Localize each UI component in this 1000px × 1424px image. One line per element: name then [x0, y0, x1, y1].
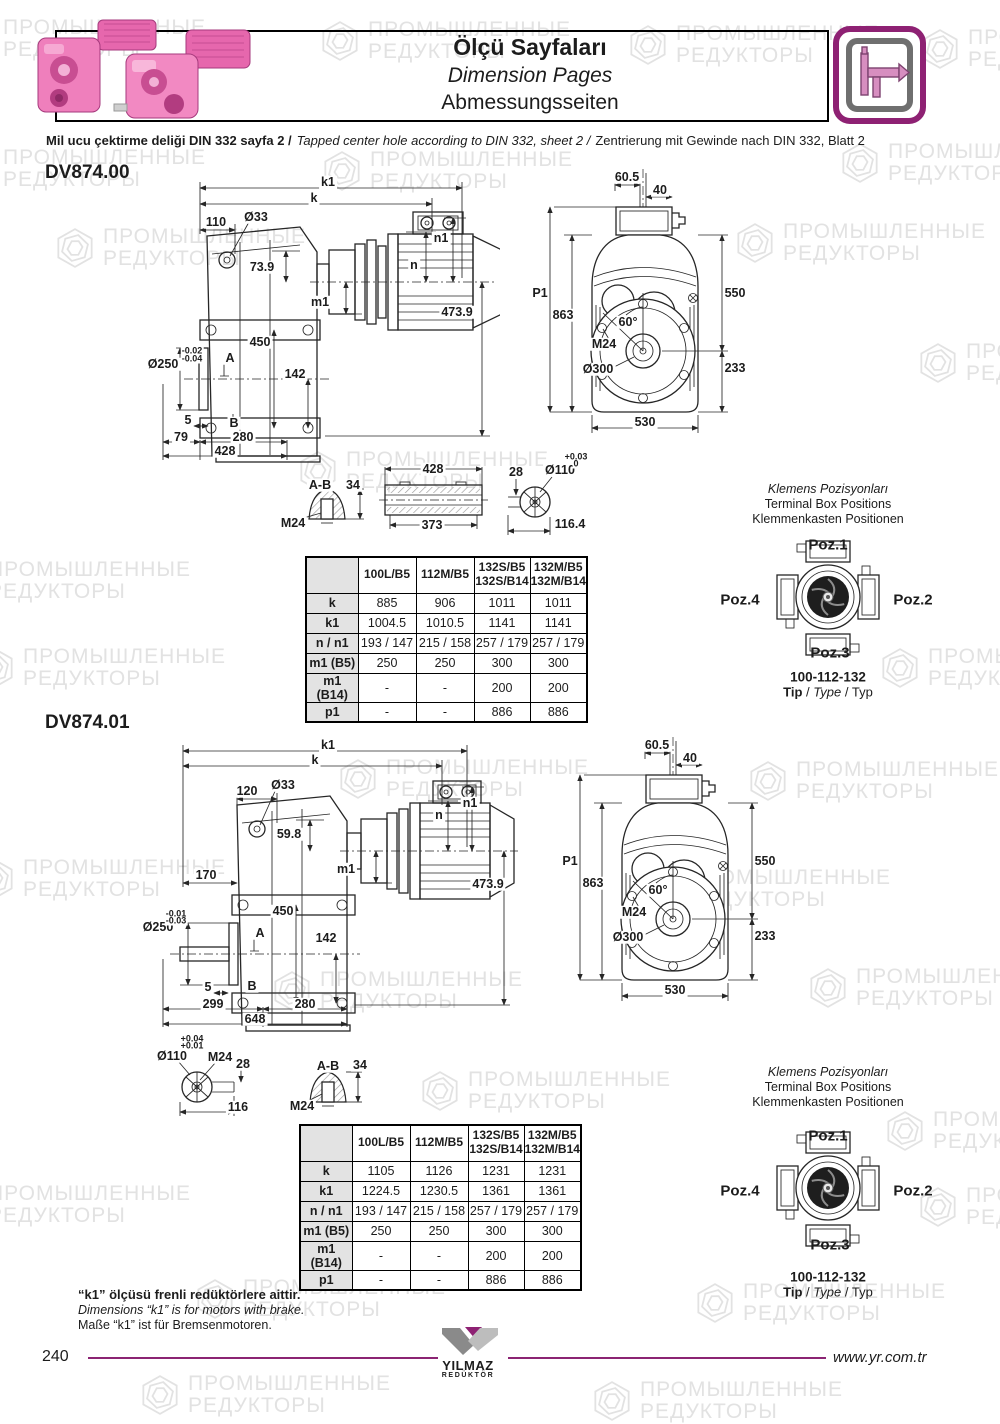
- type-code: 100-112-132: [790, 1270, 866, 1285]
- page-title-english: Dimension Pages: [250, 62, 810, 89]
- table-cell: 250: [358, 653, 416, 673]
- table-cell: 215 / 158: [416, 633, 474, 653]
- table-cell: 215 / 158: [410, 1201, 468, 1221]
- dim-60deg: 60°: [617, 316, 640, 329]
- dimension-table-dv874-00: 100L/B5 112M/B5 132S/B5132S/B14 132M/B51…: [305, 556, 588, 723]
- poz-4-label: Poz.4: [720, 1183, 759, 1200]
- type-turkish: Tip: [783, 1285, 802, 1300]
- poz-2-label: Poz.2: [893, 592, 932, 609]
- dim-5: 5: [203, 981, 214, 994]
- row-label: k: [300, 1161, 352, 1181]
- table-cell: -: [416, 673, 474, 702]
- column-header: 100L/B5: [352, 1125, 410, 1161]
- dv874-01-side-view: k1 k 120 Ø33 59.8 n1 n m1 473.9 170 450 …: [150, 737, 520, 1032]
- dim-299: 299: [201, 998, 226, 1011]
- yilmaz-logo-text: YILMAZ: [436, 1358, 500, 1373]
- watermark: ПРОМЫШЛЕННЫЕРЕДУКТОРЫ: [592, 1378, 843, 1424]
- dim-k: k: [310, 754, 321, 767]
- dimension-table-dv874-01: 100L/B5 112M/B5 132S/B5132S/B14 132M/B51…: [299, 1124, 582, 1291]
- hexagon-watermark-icon: [55, 225, 95, 271]
- watermark: ПРОМЫШЛЕННЫЕРЕДУКТОРЫ: [0, 558, 191, 604]
- watermark: ПРОМЫШЛЕННЫЕРЕДУКТОРЫ: [920, 26, 1000, 72]
- watermark-line2: РЕДУКТОРЫ: [783, 243, 986, 265]
- row-label: k1: [306, 613, 358, 633]
- watermark-line2: РЕДУКТОРЫ: [743, 1303, 946, 1325]
- table-cell: 1361: [524, 1181, 581, 1201]
- poz-2-label: Poz.2: [893, 1183, 932, 1200]
- dim-tolerance-lower: -0.03: [165, 917, 188, 926]
- type-english: Type: [813, 1285, 841, 1300]
- dim-n: n: [408, 259, 420, 272]
- column-header: 112M/B5: [410, 1125, 468, 1161]
- datum-a: A: [223, 352, 236, 365]
- dim-m24: M24: [590, 338, 618, 351]
- hexagon-watermark-icon: [808, 965, 848, 1011]
- dim-k1: k1: [319, 176, 337, 189]
- table-corner-cell: [300, 1125, 352, 1161]
- caliper-icon-drawing: [832, 26, 927, 124]
- watermark: ПРОМЫШЛЕННЫЕРЕДУКТОРЫ: [140, 1372, 391, 1418]
- dim-n1: n1: [432, 232, 451, 245]
- table-cell: -: [352, 1270, 410, 1290]
- watermark-line1: ПРОМЫШЛЕННЫЕ: [640, 1379, 843, 1401]
- dim-450: 450: [248, 336, 273, 349]
- dim-tolerance-lower: 0: [572, 460, 579, 469]
- row-label: k1: [300, 1181, 352, 1201]
- table-cell: 1105: [352, 1161, 410, 1181]
- table-cell: 886: [524, 1270, 581, 1290]
- dim-233: 233: [723, 362, 748, 375]
- hexagon-watermark-icon: [592, 1378, 632, 1424]
- table-cell: 300: [468, 1221, 524, 1241]
- poz-1-label: Poz.1: [808, 537, 847, 554]
- website-url: www.yr.com.tr: [833, 1349, 927, 1366]
- table-row: m1 (B5)250250300300: [306, 653, 587, 673]
- type-turkish: Tip: [783, 685, 802, 700]
- table-corner-cell: [306, 557, 358, 593]
- watermark-line1: ПРОМЫШЛЕННЫЕ: [783, 221, 986, 243]
- dim-60-5: 60.5: [643, 739, 671, 752]
- dim-79: 79: [172, 431, 190, 444]
- poz-4-label: Poz.4: [720, 592, 759, 609]
- dim-550: 550: [723, 287, 748, 300]
- motor-size: 132S/B14: [475, 575, 530, 589]
- table-cell: 300: [524, 1221, 581, 1241]
- watermark-line2: РЕДУКТОРЫ: [640, 1401, 843, 1423]
- row-label: p1: [300, 1270, 352, 1290]
- dim-120: 120: [235, 785, 260, 798]
- dim-280: 280: [293, 998, 318, 1011]
- watermark-line1: ПРОМЫШЛЕННЫЕ: [23, 646, 226, 668]
- dim-473-9: 473.9: [439, 306, 474, 319]
- watermark-line2: РЕДУКТОРЫ: [856, 988, 1000, 1010]
- dim-28: 28: [507, 466, 525, 479]
- table-cell: 257 / 179: [524, 1201, 581, 1221]
- dim-m1: m1: [309, 296, 331, 309]
- table-cell: 200: [474, 673, 530, 702]
- terminal-title-english: Terminal Box Positions: [700, 498, 956, 511]
- motor-size: 132M/B5: [525, 1129, 581, 1143]
- footnote-english: Dimensions “k1” is for motors with brake…: [78, 1303, 304, 1317]
- table-cell: 1141: [530, 613, 587, 633]
- table-cell: 885: [358, 593, 416, 613]
- dim-142: 142: [283, 368, 308, 381]
- footer-rule-right: [508, 1357, 826, 1359]
- table-cell: 1231: [468, 1161, 524, 1181]
- table-cell: 200: [530, 673, 587, 702]
- watermark-line1: ПРОМЫШЛЕННЫЕ: [966, 341, 1000, 363]
- separator: /: [845, 685, 849, 700]
- table-cell: 193 / 147: [358, 633, 416, 653]
- type-label: Tip / Type / Typ: [783, 685, 873, 700]
- motor-size: 100L/B5: [359, 568, 416, 582]
- footer-rule-left: [88, 1357, 438, 1359]
- separator: /: [806, 1285, 810, 1300]
- din-note-english: Tapped center hole according to DIN 332,…: [297, 133, 591, 148]
- watermark-line1: ПРОМЫШЛЕННЫЕ: [468, 1069, 671, 1091]
- table-cell: 257 / 179: [530, 633, 587, 653]
- dim-60deg: 60°: [647, 884, 670, 897]
- table-cell: 1010.5: [416, 613, 474, 633]
- poz-3-label: Poz.3: [810, 645, 849, 662]
- motor-size: 132M/B14: [531, 575, 587, 589]
- hexagon-watermark-icon: [140, 1372, 180, 1418]
- separator: /: [806, 685, 810, 700]
- column-header: 132S/B5132S/B14: [468, 1125, 524, 1161]
- watermark: ПРОМЫШЛЕННЫЕРЕДУКТОРЫ: [0, 645, 226, 691]
- page-title-german: Abmessungsseiten: [250, 89, 810, 116]
- dim-40: 40: [651, 184, 669, 197]
- dim-o300: Ø300: [581, 363, 616, 376]
- dim-m24: M24: [206, 1051, 234, 1064]
- column-header: 132M/B5132M/B14: [530, 557, 587, 593]
- watermark-line1: ПРОМЫШЛЕННЫЕ: [888, 141, 1000, 163]
- footnote-german: Maße “k1” ist für Bremsenmotoren.: [78, 1318, 272, 1332]
- table-cell: 886: [474, 702, 530, 722]
- table-row: m1 (B14)--200200: [306, 673, 587, 702]
- motor-size: 132S/B5: [469, 1129, 524, 1143]
- watermark-line2: РЕДУКТОРЫ: [888, 163, 1000, 185]
- table-cell: -: [416, 702, 474, 722]
- dim-110: 110: [204, 216, 228, 229]
- row-label: n / n1: [306, 633, 358, 653]
- dim-5: 5: [183, 414, 194, 427]
- hexagon-watermark-icon: [0, 645, 15, 691]
- table-row: p1--886886: [306, 702, 587, 722]
- dim-550: 550: [753, 855, 778, 868]
- dim-530: 530: [663, 984, 688, 997]
- model-label-dv874-01: DV874.01: [45, 712, 130, 734]
- table-cell: 200: [524, 1241, 581, 1270]
- column-header: 132M/B5132M/B14: [524, 1125, 581, 1161]
- footnote-turkish: “k1” ölçüsü frenli redüktörlere aittir.: [78, 1287, 301, 1302]
- table-cell: -: [410, 1241, 468, 1270]
- dim-473-9: 473.9: [470, 878, 505, 891]
- motor-size: 132S/B5: [475, 561, 530, 575]
- table-cell: 250: [352, 1221, 410, 1241]
- dim-p1: P1: [530, 287, 549, 300]
- dim-60-5: 60.5: [613, 171, 641, 184]
- dv874-00-front-view: 60.5 40 P1 863 550 60° M24 Ø300 233 530: [530, 165, 760, 457]
- dim-428: 428: [213, 445, 238, 458]
- dv874-01-detail-views: +0.04 +0.01 Ø110 M24 28 116 A-B 34 M24: [140, 1030, 480, 1125]
- row-label: m1 (B5): [300, 1221, 352, 1241]
- table-header-row: 100L/B5 112M/B5 132S/B5132S/B14 132M/B51…: [300, 1125, 581, 1161]
- dim-o110: Ø110: [155, 1050, 189, 1063]
- column-header: 112M/B5: [416, 557, 474, 593]
- table-cell: 1231: [524, 1161, 581, 1181]
- table-cell: -: [352, 1241, 410, 1270]
- table-row: n / n1193 / 147215 / 158257 / 179257 / 1…: [300, 1201, 581, 1221]
- dim-p1: P1: [560, 855, 579, 868]
- table-cell: 1224.5: [352, 1181, 410, 1201]
- dim-428-shaft: 428: [421, 463, 446, 476]
- column-header: 100L/B5: [358, 557, 416, 593]
- dim-n: n: [433, 809, 445, 822]
- table-cell: 1141: [474, 613, 530, 633]
- terminal-box-positions-dv874-00: Klemens Pozisyonları Terminal Box Positi…: [700, 483, 956, 713]
- dim-863: 863: [581, 877, 606, 890]
- motor-size: 112M/B5: [417, 568, 474, 582]
- table-cell: 886: [530, 702, 587, 722]
- table-cell: 250: [416, 653, 474, 673]
- caliper-icon: [832, 26, 927, 129]
- datum-b: B: [245, 980, 258, 993]
- table-cell: 257 / 179: [468, 1201, 524, 1221]
- dim-28: 28: [234, 1058, 252, 1071]
- table-cell: -: [410, 1270, 468, 1290]
- dim-34: 34: [351, 1059, 369, 1072]
- dim-o250: Ø250: [146, 358, 181, 371]
- table-cell: 1361: [468, 1181, 524, 1201]
- terminal-title-turkish: Klemens Pozisyonları: [700, 483, 956, 496]
- dim-o300: Ø300: [611, 931, 646, 944]
- row-label: m1 (B14): [306, 673, 358, 702]
- type-label: Tip / Type / Typ: [783, 1285, 873, 1300]
- terminal-title-english: Terminal Box Positions: [700, 1081, 956, 1094]
- watermark-line1: ПРОМЫШЛЕННЫЕ: [0, 559, 191, 581]
- poz-1-label: Poz.1: [808, 1128, 847, 1145]
- dim-m24: M24: [279, 517, 307, 530]
- row-label: m1 (B14): [300, 1241, 352, 1270]
- row-label: k: [306, 593, 358, 613]
- table-cell: 193 / 147: [352, 1201, 410, 1221]
- section-ab-label: A-B: [315, 1060, 341, 1073]
- poz-3-label: Poz.3: [810, 1237, 849, 1254]
- dim-n1: n1: [461, 797, 480, 810]
- table-header-row: 100L/B5 112M/B5 132S/B5132S/B14 132M/B51…: [306, 557, 587, 593]
- yilmaz-logo-mark: [438, 1326, 502, 1360]
- table-row: m1 (B14)--200200: [300, 1241, 581, 1270]
- din-note-turkish: Mil ucu çektirme deliği DIN 332 sayfa 2 …: [46, 133, 292, 148]
- header-titles: Ölçü Sayfaları Dimension Pages Abmessung…: [250, 33, 810, 116]
- din-note-german: Zentrierung mit Gewinde nach DIN 332, Bl…: [595, 133, 865, 148]
- column-header: 132S/B5132S/B14: [474, 557, 530, 593]
- motor-size: 100L/B5: [353, 1136, 410, 1150]
- watermark-line1: ПРОМЫШЛЕННЫЕ: [188, 1373, 391, 1395]
- dim-m24: M24: [620, 906, 648, 919]
- yilmaz-logo-subtext: REDÜKTÖR: [436, 1372, 500, 1379]
- catalog-page: { "watermark": { "line1": "ПРОМЫШЛЕННЫЕ"…: [0, 0, 1000, 1414]
- watermark-line1: ПРОМЫШЛЕННЫЕ: [966, 1185, 1000, 1207]
- gearmotor-product-photo: [28, 16, 263, 125]
- watermark-line2: РЕДУКТОРЫ: [966, 363, 1000, 385]
- watermark-line2: РЕДУКТОРЫ: [968, 49, 1000, 71]
- watermark: ПРОМЫШЛЕННЫЕРЕДУКТОРЫ: [735, 220, 986, 266]
- table-cell: 1011: [474, 593, 530, 613]
- terminal-box-positions-dv874-01: Klemens Pozisyonları Terminal Box Positi…: [700, 1066, 956, 1306]
- dim-450: 450: [271, 905, 296, 918]
- table-row: k11004.51010.511411141: [306, 613, 587, 633]
- row-label: n / n1: [300, 1201, 352, 1221]
- type-english: Type: [813, 685, 841, 700]
- table-row: n / n1193 / 147215 / 158257 / 179257 / 1…: [306, 633, 587, 653]
- dim-280: 280: [231, 431, 256, 444]
- page-number: 240: [42, 1348, 69, 1366]
- terminal-title-turkish: Klemens Pozisyonları: [700, 1066, 956, 1079]
- watermark: ПРОМЫШЛЕННЫЕРЕДУКТОРЫ: [808, 965, 1000, 1011]
- hexagon-watermark-icon: [918, 340, 958, 386]
- table-row: m1 (B5)250250300300: [300, 1221, 581, 1241]
- watermark: ПРОМЫШЛЕННЫЕРЕДУКТОРЫ: [918, 340, 1000, 386]
- watermark-line2: РЕДУКТОРЫ: [796, 781, 999, 803]
- watermark: ПРОМЫШЛЕННЫЕРЕДУКТОРЫ: [0, 1182, 191, 1228]
- table-cell: 886: [468, 1270, 524, 1290]
- dim-648: 648: [243, 1013, 268, 1026]
- terminal-title-german: Klemmenkasten Positionen: [700, 1096, 956, 1109]
- watermark-line2: РЕДУКТОРЫ: [0, 581, 191, 603]
- dim-o33: Ø33: [269, 779, 297, 792]
- dim-m24: M24: [288, 1100, 316, 1113]
- model-label-dv874-00: DV874.00: [45, 162, 130, 184]
- dim-863: 863: [551, 309, 576, 322]
- table-row: k1105112612311231: [300, 1161, 581, 1181]
- separator: /: [845, 1285, 849, 1300]
- page-title-turkish: Ölçü Sayfaları: [250, 33, 810, 62]
- watermark-line1: ПРОМЫШЛЕННЫЕ: [796, 759, 999, 781]
- type-german: Typ: [852, 1285, 873, 1300]
- watermark-line1: ПРОМЫШЛЕННЫЕ: [856, 966, 1000, 988]
- watermark-line1: ПРОМЫШЛЕННЫЕ: [0, 1183, 191, 1205]
- hexagon-watermark-icon: [0, 856, 15, 902]
- dim-k1: k1: [319, 739, 337, 752]
- watermark-line2: РЕДУКТОРЫ: [468, 1091, 671, 1113]
- watermark-line2: РЕДУКТОРЫ: [23, 668, 226, 690]
- dim-m1: m1: [335, 863, 357, 876]
- table-cell: 200: [468, 1241, 524, 1270]
- section-ab-label: A-B: [307, 479, 333, 492]
- dim-40: 40: [681, 752, 699, 765]
- din-note: Mil ucu çektirme deliği DIN 332 sayfa 2 …: [46, 133, 865, 148]
- type-german: Typ: [852, 685, 873, 700]
- motor-size: 132S/B14: [469, 1143, 524, 1157]
- table-cell: 1230.5: [410, 1181, 468, 1201]
- dim-170: 170: [194, 869, 219, 882]
- dim-59-8: 59.8: [275, 828, 303, 841]
- motor-size: 112M/B5: [411, 1136, 468, 1150]
- dim-116: 116: [226, 1101, 250, 1114]
- table-cell: 906: [416, 593, 474, 613]
- dim-tolerance-lower: -0.04: [181, 355, 204, 364]
- table-row: k88590610111011: [306, 593, 587, 613]
- table-cell: 300: [474, 653, 530, 673]
- dim-142: 142: [314, 932, 339, 945]
- table-cell: 257 / 179: [474, 633, 530, 653]
- row-label: p1: [306, 702, 358, 722]
- datum-b: B: [227, 417, 240, 430]
- watermark-line2: РЕДУКТОРЫ: [0, 1205, 191, 1227]
- table-cell: -: [358, 673, 416, 702]
- detail-drawing: [280, 455, 700, 547]
- dv874-01-front-view: 60.5 40 P1 863 550 60° M24 Ø300 233 530: [560, 733, 790, 1025]
- watermark-line2: РЕДУКТОРЫ: [966, 1207, 1000, 1229]
- table-row: p1--886886: [300, 1270, 581, 1290]
- dim-530: 530: [633, 416, 658, 429]
- datum-a: A: [253, 927, 266, 940]
- dim-o33: Ø33: [242, 211, 270, 224]
- dim-233: 233: [753, 930, 778, 943]
- dim-k: k: [309, 192, 320, 205]
- dim-73-9: 73.9: [248, 261, 276, 274]
- watermark-line1: ПРОМЫШЛЕННЫЕ: [968, 27, 1000, 49]
- dim-34: 34: [344, 479, 362, 492]
- row-label: m1 (B5): [306, 653, 358, 673]
- table-cell: -: [358, 702, 416, 722]
- type-code: 100-112-132: [790, 670, 866, 685]
- motor-size: 132M/B5: [531, 561, 587, 575]
- table-cell: 1011: [530, 593, 587, 613]
- table-cell: 300: [530, 653, 587, 673]
- terminal-title-german: Klemmenkasten Positionen: [700, 513, 956, 526]
- table-cell: 250: [410, 1221, 468, 1241]
- table-cell: 1126: [410, 1161, 468, 1181]
- pink-gearmotors-illustration: [28, 16, 263, 120]
- dim-116-4: 116.4: [553, 518, 588, 531]
- table-cell: 1004.5: [358, 613, 416, 633]
- motor-size: 132M/B14: [525, 1143, 581, 1157]
- dim-373: 373: [420, 519, 445, 532]
- table-row: k11224.51230.513611361: [300, 1181, 581, 1201]
- dv874-00-side-view: k1 k 110 Ø33 73.9 n1 n m1 473.9 450 Ø250…: [150, 172, 500, 464]
- dv874-00-detail-views: A-B 34 M24 428 373 28 Ø110 +0.03 0 116.4: [280, 455, 700, 547]
